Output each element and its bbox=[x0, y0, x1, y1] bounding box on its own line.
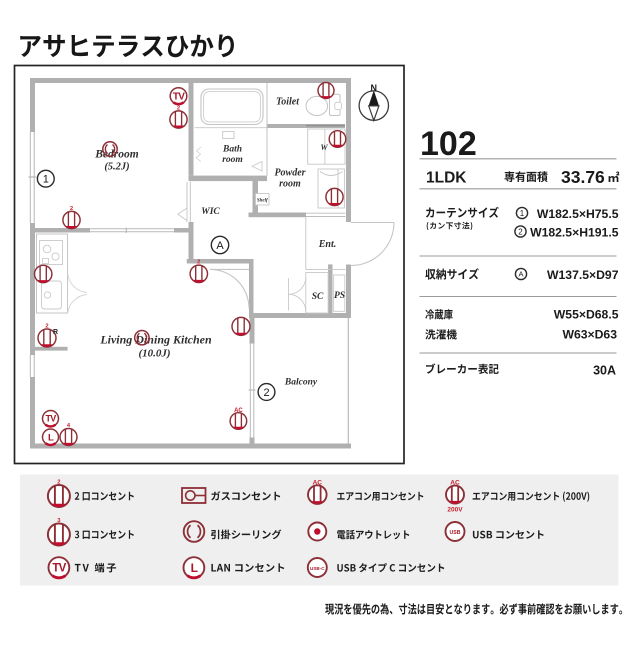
svg-text:Balcony: Balcony bbox=[284, 378, 318, 388]
svg-text:33.76: 33.76 bbox=[561, 167, 605, 187]
svg-text:AC: AC bbox=[313, 480, 323, 487]
svg-text:2: 2 bbox=[197, 260, 200, 266]
svg-text:W182.5×H191.5: W182.5×H191.5 bbox=[530, 226, 619, 240]
svg-text:W55×D68.5: W55×D68.5 bbox=[554, 308, 619, 322]
svg-text:2: 2 bbox=[57, 480, 60, 486]
svg-text:2: 2 bbox=[263, 387, 269, 399]
svg-text:Toilet: Toilet bbox=[276, 97, 300, 108]
svg-text:Powder: Powder bbox=[274, 168, 305, 179]
svg-text:N: N bbox=[371, 83, 378, 93]
svg-text:A: A bbox=[216, 240, 224, 252]
svg-text:TV: TV bbox=[52, 563, 66, 575]
svg-text:W137.5×D97: W137.5×D97 bbox=[547, 268, 619, 282]
svg-text:USB: USB bbox=[450, 530, 461, 536]
svg-text:Living Dining Kitchen: Living Dining Kitchen bbox=[99, 333, 212, 347]
svg-text:2: 2 bbox=[177, 106, 180, 112]
svg-text:room: room bbox=[222, 155, 243, 165]
svg-text:TV: TV bbox=[46, 414, 57, 424]
svg-text:102: 102 bbox=[420, 125, 477, 163]
svg-text:1LDK: 1LDK bbox=[426, 170, 467, 187]
svg-text:Bath: Bath bbox=[222, 145, 242, 155]
svg-text:PS: PS bbox=[334, 291, 345, 301]
svg-text:WIC: WIC bbox=[201, 207, 220, 217]
svg-text:AC: AC bbox=[450, 480, 460, 487]
svg-text:(5.2J): (5.2J) bbox=[104, 162, 129, 173]
svg-text:30A: 30A bbox=[593, 364, 616, 378]
svg-text:2: 2 bbox=[70, 206, 73, 212]
svg-text:1: 1 bbox=[520, 209, 525, 218]
svg-text:room: room bbox=[279, 179, 301, 190]
svg-text:Shelf: Shelf bbox=[257, 199, 269, 204]
svg-text:Ent.: Ent. bbox=[318, 239, 337, 250]
svg-text:W63×D63: W63×D63 bbox=[562, 328, 617, 342]
svg-text:W: W bbox=[320, 143, 328, 152]
svg-text:USB-C: USB-C bbox=[310, 566, 325, 571]
svg-text:SC: SC bbox=[312, 292, 324, 302]
svg-text:A: A bbox=[518, 270, 523, 279]
svg-text:1: 1 bbox=[43, 174, 49, 186]
svg-text:L: L bbox=[191, 561, 198, 575]
svg-text:2: 2 bbox=[45, 324, 48, 330]
svg-text:(10.0J): (10.0J) bbox=[138, 348, 170, 360]
svg-text:2: 2 bbox=[518, 227, 523, 236]
svg-text:AC: AC bbox=[234, 408, 243, 414]
svg-text:W182.5×H75.5: W182.5×H75.5 bbox=[537, 207, 619, 221]
svg-text:TV: TV bbox=[173, 92, 185, 103]
svg-text:200V: 200V bbox=[447, 507, 463, 514]
svg-text:R: R bbox=[53, 329, 58, 336]
